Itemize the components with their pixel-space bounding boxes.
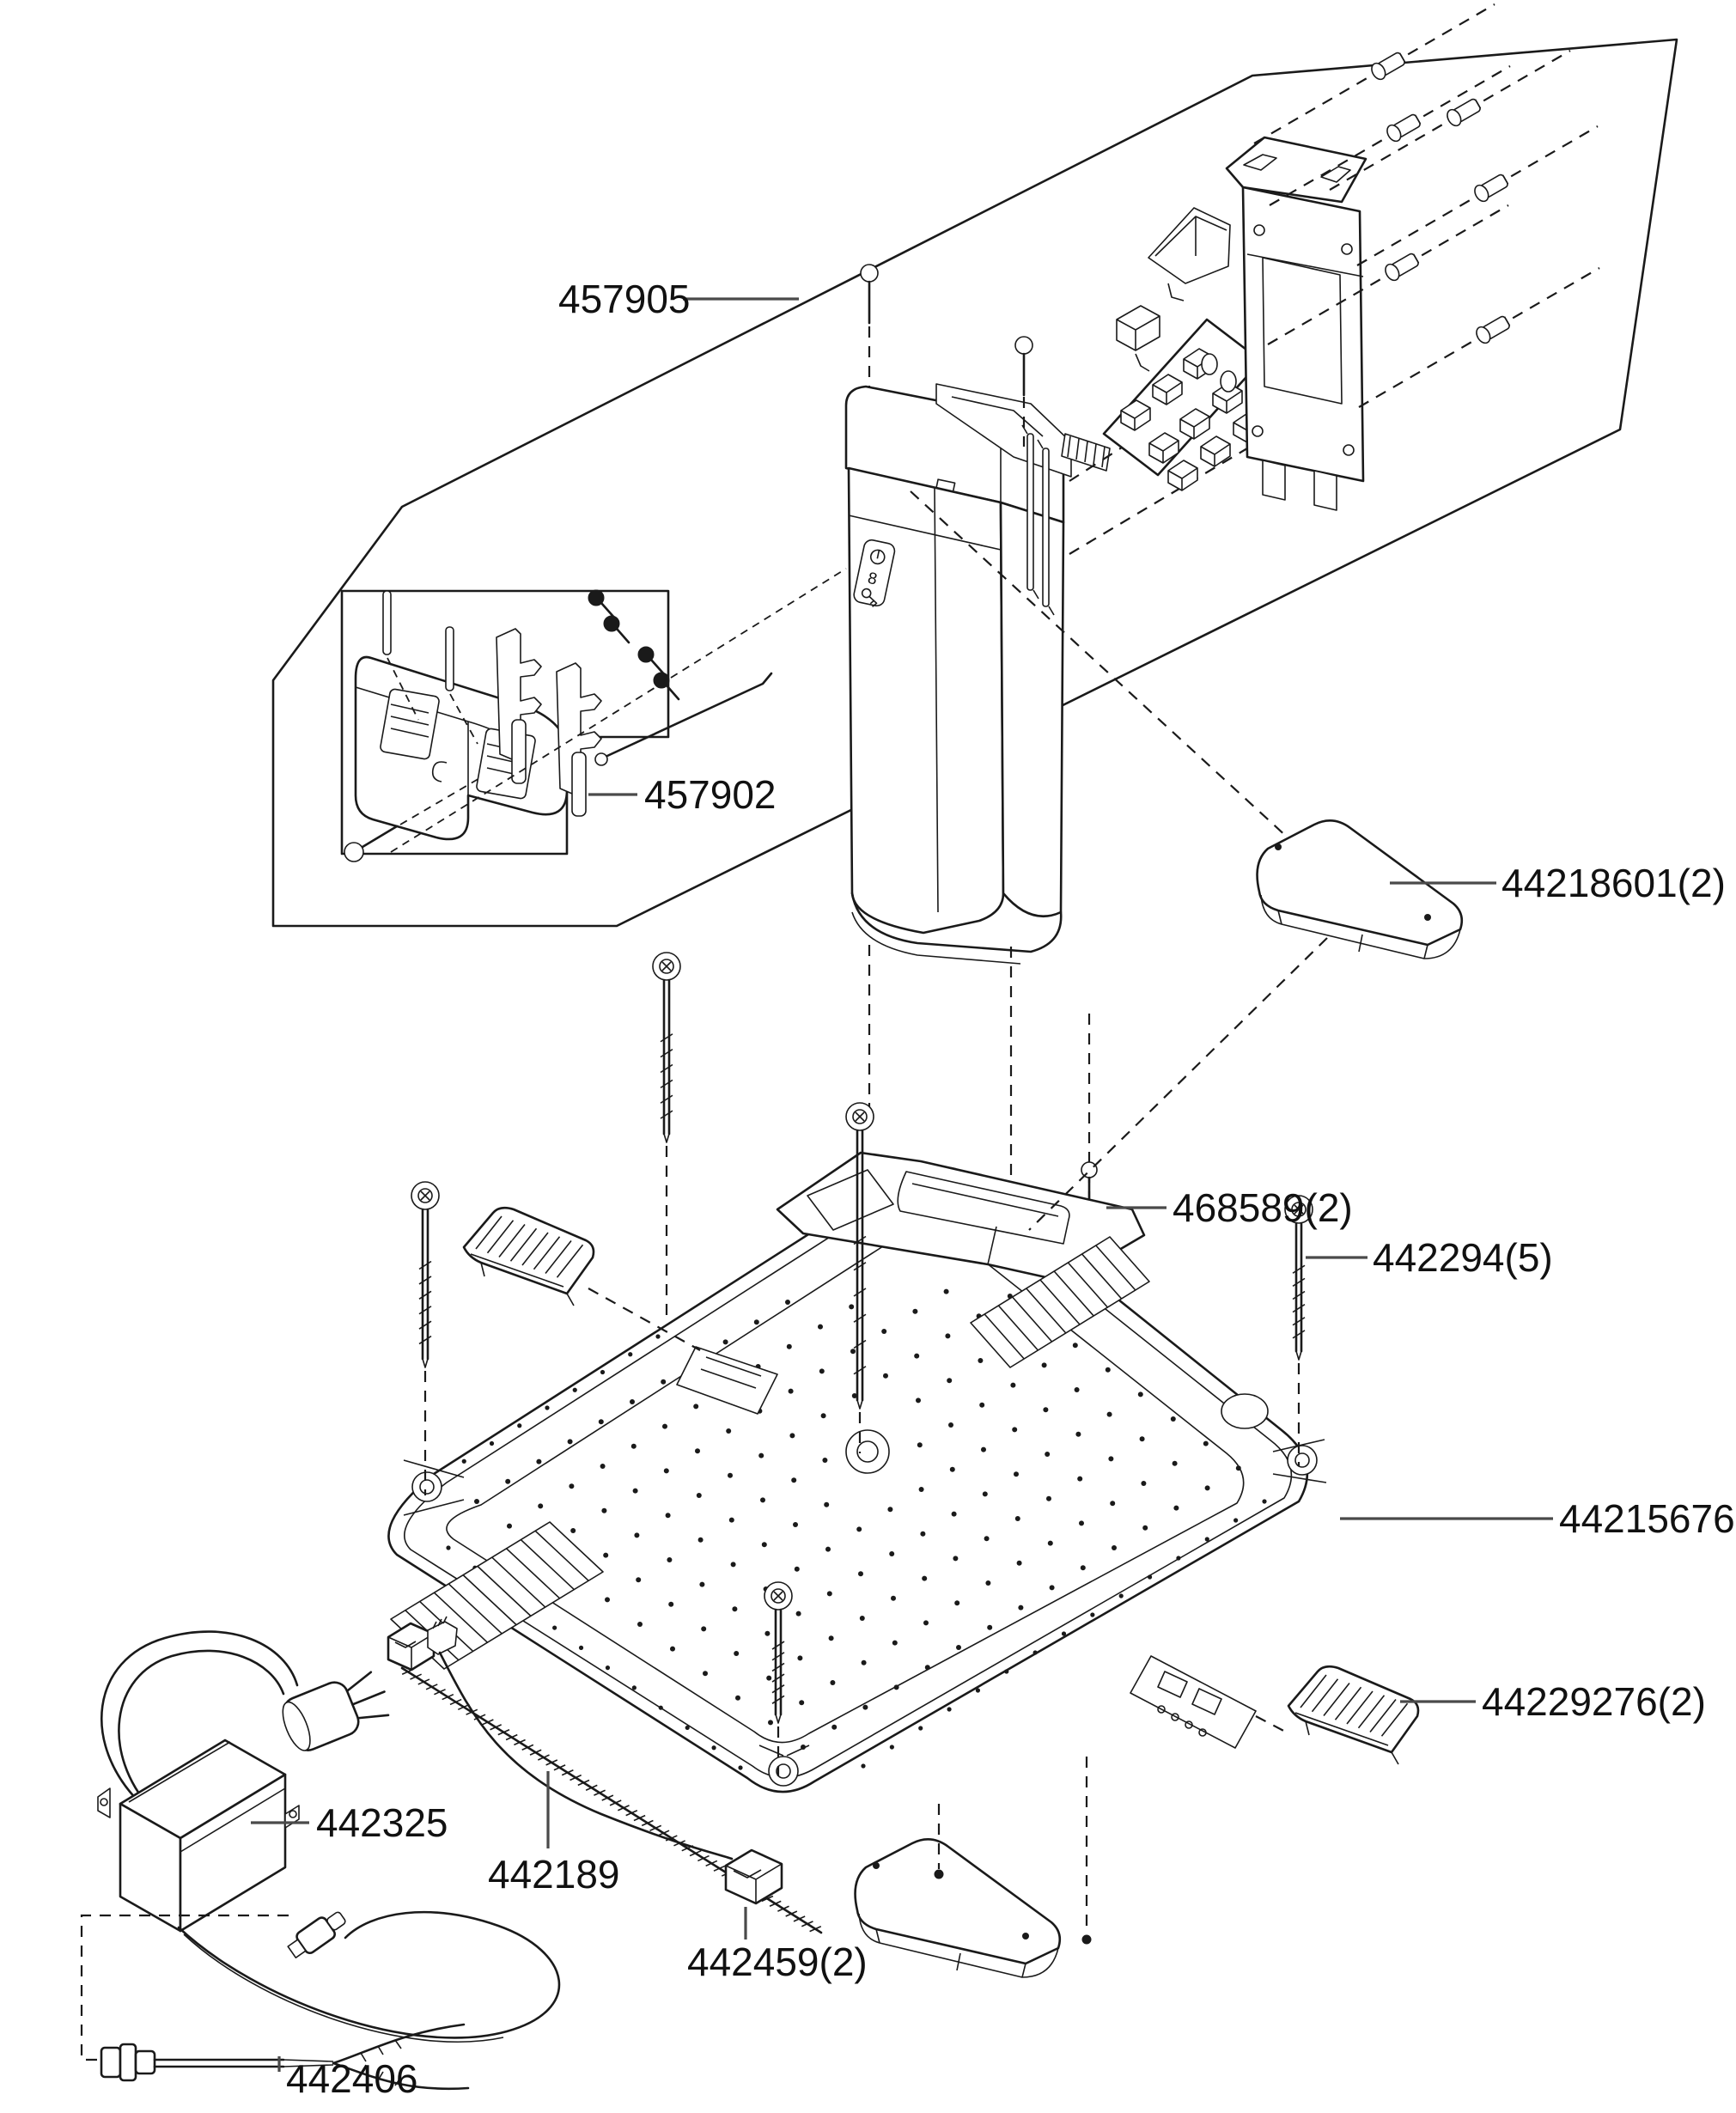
perforation-dot (762, 1542, 767, 1547)
perforation-dot (723, 1339, 728, 1344)
rim-dot (1262, 1499, 1266, 1503)
perforation-dot (1140, 1436, 1145, 1441)
perforation-dot (795, 1567, 800, 1572)
perforation-dot (987, 1625, 992, 1630)
perforation-dot (600, 1464, 606, 1469)
rim-dot (517, 1423, 521, 1428)
perforation-dot (858, 1571, 863, 1576)
rim-dot (446, 1545, 450, 1550)
screw-thread (1293, 1278, 1305, 1286)
perforation-dot (860, 1616, 865, 1621)
perforation-dot (568, 1439, 573, 1444)
kit-screws-black (588, 590, 679, 699)
rim-dot (1119, 1593, 1124, 1598)
rim-dot (1148, 1574, 1152, 1579)
rim-dot (1205, 1537, 1209, 1541)
perforation-dot (703, 1671, 708, 1676)
perforation-dot (754, 1319, 759, 1324)
screw-tip (1296, 1351, 1301, 1360)
perforation-dot (789, 1433, 795, 1438)
screw-thread (854, 1314, 866, 1322)
screw-thread (419, 1337, 431, 1344)
perforation-dot (862, 1660, 867, 1665)
corner-screw-bosses (404, 1440, 1326, 1786)
perforation-dot (693, 1404, 698, 1409)
perforation-dot (1050, 1585, 1055, 1590)
led-window-cover (1148, 208, 1230, 301)
screw-thread (1293, 1331, 1305, 1338)
perforation-dot (636, 1577, 641, 1582)
part-label-44229276: 44229276(2) (1482, 1679, 1706, 1724)
perforation-dot (789, 1389, 794, 1394)
perforation-dot (830, 1680, 835, 1685)
rim-dot (573, 1388, 577, 1392)
part-44218601-bumper-1 (1258, 820, 1462, 959)
perforation-dot (698, 1538, 704, 1543)
perforation-dot (1112, 1545, 1117, 1550)
rim-dot (738, 1765, 742, 1769)
rim-dot (711, 1745, 716, 1750)
perforation-dot (768, 1720, 773, 1725)
component-box (1168, 460, 1197, 490)
perforation-dot (605, 1597, 610, 1602)
plate-oval-hole (1221, 1394, 1268, 1428)
pcb-capacitor (1221, 371, 1236, 392)
perforation-dot (570, 1528, 576, 1533)
screw-tip (664, 1134, 669, 1142)
screw-442294 (653, 953, 680, 1322)
perforation-dot (824, 1502, 829, 1507)
perforation-dot (983, 1491, 988, 1496)
perforation-dot (1110, 1501, 1115, 1506)
perforation-dot (956, 1645, 961, 1650)
perforation-dot (954, 1600, 959, 1605)
perforation-dot (758, 1453, 764, 1458)
perforation-dot (978, 1358, 983, 1363)
perforation-dot (1048, 1541, 1053, 1546)
rim-dot (1176, 1556, 1180, 1560)
part-label-468589: 468589(2) (1173, 1185, 1353, 1230)
screw-thread (1293, 1265, 1305, 1273)
screw-tip (776, 1714, 781, 1723)
perforation-dot (1173, 1506, 1179, 1511)
perforation-dot (945, 1333, 950, 1338)
perforation-dot (630, 1399, 635, 1404)
perforation-dot (1203, 1441, 1209, 1446)
rim-dot (918, 1726, 923, 1730)
perforation-dot (923, 1620, 929, 1625)
screw-tip (423, 1359, 428, 1367)
exploded-parts-diagram: 8 (0, 0, 1736, 2113)
perforation-dot (631, 1444, 637, 1449)
perforation-dot (831, 1725, 837, 1730)
perforation-dot (1142, 1525, 1148, 1531)
pcb-component (1168, 460, 1197, 490)
screw-thread (772, 1663, 784, 1671)
perforation-dot (729, 1518, 734, 1523)
rim-dot (632, 1685, 637, 1690)
part-44218601-bumper-2 (856, 1839, 1060, 1977)
perforation-dot (668, 1602, 673, 1607)
perforation-dot (661, 1379, 666, 1385)
screw-thread (1293, 1318, 1305, 1325)
part-442459-connector (726, 1850, 782, 1903)
perforation-dot (914, 1354, 919, 1359)
perforation-dot (819, 1368, 825, 1373)
screw-thread (772, 1696, 784, 1703)
perforation-dot (695, 1448, 700, 1453)
screw-thread (419, 1262, 431, 1270)
perforation-dot (1141, 1481, 1146, 1486)
screw-thread (419, 1291, 431, 1299)
screw-thread (772, 1641, 784, 1649)
screw-thread (661, 1080, 673, 1087)
machine-screw (1472, 172, 1510, 204)
rim-dot (659, 1706, 663, 1710)
perforation-dot (944, 1289, 949, 1294)
screw-442294 (411, 1182, 439, 1495)
machine-screw (1474, 314, 1512, 345)
perforation-dot (829, 1635, 834, 1641)
perforation-dot (881, 1329, 886, 1334)
screw-thread (661, 1111, 673, 1118)
perforation-dot (1042, 1362, 1047, 1367)
perforation-dot (701, 1626, 706, 1631)
part-457902-contact-kit (344, 569, 846, 862)
part-label-457905: 457905 (558, 277, 691, 321)
perforation-dot (734, 1651, 739, 1656)
flap2-axis (1256, 1716, 1288, 1733)
plug-to-cable-link (82, 1915, 289, 2060)
perforation-dot (633, 1489, 638, 1494)
screw-thread (419, 1321, 431, 1329)
tower-front (849, 468, 1003, 933)
perforation-dot (891, 1596, 896, 1601)
diagram-canvas: 8 (0, 0, 1736, 2113)
perforation-dot (979, 1403, 984, 1408)
perforation-dot (887, 1507, 892, 1512)
perforation-dot (793, 1522, 798, 1527)
screw-thread (661, 1034, 673, 1042)
plate-screws-442294 (411, 953, 1313, 1776)
perforation-dot (731, 1562, 736, 1567)
perforation-dot (699, 1582, 704, 1587)
perforation-dot (925, 1665, 930, 1670)
perforation-dot (1079, 1520, 1084, 1525)
perforation-dot (732, 1606, 737, 1611)
perforation-dot (1081, 1565, 1086, 1570)
perforation-dot (948, 1422, 953, 1428)
perforation-dot (850, 1349, 856, 1354)
perforation-dot (1014, 1471, 1019, 1477)
perforation-dot (889, 1551, 894, 1556)
kit-signal-wire (595, 673, 771, 765)
rim-dot (628, 1352, 632, 1356)
perforation-dot (1075, 1387, 1080, 1392)
rim-dot (1233, 1518, 1238, 1522)
flap-outline (1288, 1666, 1418, 1752)
screw-thread (1293, 1305, 1305, 1312)
screw-thread (772, 1674, 784, 1682)
low-voltage-cord (179, 1912, 559, 2037)
perforation-dot (1015, 1516, 1020, 1521)
part-label-442189: 442189 (488, 1852, 620, 1897)
perforation-dot (1106, 1367, 1111, 1373)
perforation-dot (894, 1684, 899, 1690)
machine-screw (1383, 251, 1421, 283)
part-label-442325: 442325 (316, 1800, 448, 1845)
rim-dot (1090, 1612, 1094, 1617)
perforation-dot (822, 1458, 827, 1463)
perforation-dot (825, 1547, 831, 1552)
screw-thread (772, 1653, 784, 1660)
part-44229276-flap-1 (464, 1208, 594, 1306)
perforation-dot (601, 1508, 606, 1513)
latch-socket-left (677, 1347, 777, 1414)
part-label-442459: 442459(2) (687, 1939, 868, 1984)
perforation-dot (919, 1487, 924, 1492)
perforation-dot (799, 1700, 804, 1705)
perforation-dot (785, 1300, 790, 1305)
perforation-dot (667, 1557, 672, 1562)
rim-dot (976, 1688, 980, 1692)
power-supply (82, 1632, 559, 2060)
perforation-dot (950, 1467, 955, 1472)
bumper-screw-dot (873, 1862, 880, 1869)
screw-thread (661, 1050, 673, 1057)
psu-brick (98, 1740, 299, 1931)
perforation-dot (760, 1497, 765, 1502)
rim-dot (552, 1625, 557, 1629)
frame-opening (1263, 258, 1342, 404)
latch-socket-right (1130, 1656, 1256, 1748)
perforation-dot (726, 1428, 731, 1434)
rim-dot (490, 1441, 494, 1446)
part-label-442406: 442406 (286, 2056, 418, 2101)
relay-box (1117, 306, 1160, 371)
perforation-dot (536, 1459, 541, 1464)
screw-thread (661, 1065, 673, 1073)
perforation-dot (883, 1373, 888, 1379)
perforation-dot (1010, 1383, 1015, 1388)
pcb-capacitor (1202, 354, 1217, 374)
perforation-dot (637, 1622, 643, 1627)
part-label-457902: 457902 (644, 772, 777, 817)
bumper-screw-dot (1022, 1933, 1029, 1939)
rim-dot (545, 1405, 549, 1410)
screw-thread (661, 1095, 673, 1103)
screw-tip (857, 1400, 862, 1409)
small-screw (861, 265, 878, 323)
perforation-dot (1043, 1407, 1048, 1412)
part-44229276-flap-2 (1288, 1666, 1418, 1764)
perforation-dot (1108, 1456, 1113, 1461)
perforation-dot (947, 1378, 952, 1383)
rim-dot (1062, 1631, 1066, 1635)
low-voltage-plug (285, 1907, 350, 1962)
rim-dot (947, 1707, 951, 1711)
perforation-dot (1077, 1477, 1082, 1482)
perforation-dot (917, 1442, 923, 1447)
perforation-dot (952, 1512, 957, 1517)
perforation-dot (818, 1324, 823, 1330)
perforation-dot (821, 1413, 826, 1418)
perforation-dot (1018, 1605, 1023, 1611)
part-label-442294: 442294(5) (1373, 1235, 1553, 1280)
perforation-dot (666, 1513, 671, 1518)
perforation-dot (827, 1591, 832, 1596)
bumper-screw-dot (1275, 843, 1282, 850)
rim-dot (861, 1763, 865, 1768)
perforation-dot (670, 1647, 675, 1652)
perforation-dot (849, 1304, 854, 1309)
perforation-dot (892, 1641, 898, 1646)
screw-thread (419, 1306, 431, 1314)
perforation-dot (634, 1532, 639, 1538)
perforation-dot (766, 1676, 771, 1681)
perforation-dot (856, 1526, 862, 1531)
small-screw (1015, 337, 1032, 395)
perforation-dot (664, 1468, 669, 1473)
perforation-dot (569, 1483, 574, 1489)
machine-screw (1369, 50, 1407, 82)
wall-mount-frame (1227, 4, 1599, 510)
screw-thread (419, 1276, 431, 1284)
perforation-dot (1046, 1496, 1051, 1501)
rim-dot (1004, 1669, 1008, 1673)
flap-outline (464, 1208, 594, 1294)
perforation-dot (791, 1477, 796, 1483)
screw-head (1015, 337, 1032, 354)
perforation-dot (862, 1705, 868, 1710)
perforation-dot (797, 1655, 802, 1660)
screw-thread (854, 1341, 866, 1349)
connector-box-a (388, 1623, 434, 1670)
perforation-dot (953, 1556, 958, 1561)
screw-thread (854, 1367, 866, 1374)
rim-dot (579, 1646, 583, 1650)
perforation-dot (1205, 1485, 1210, 1490)
perforation-dot (728, 1473, 733, 1478)
perforation-dot (787, 1344, 792, 1349)
part-label-44215676: 44215676 (1559, 1496, 1735, 1541)
perforation-dot (916, 1398, 921, 1403)
perforation-dot (1073, 1343, 1078, 1348)
perforation-dot (507, 1524, 512, 1529)
perforation-dot (796, 1611, 801, 1617)
perforation-dot (474, 1499, 479, 1504)
perforation-dot (599, 1419, 604, 1424)
rim-dot (462, 1459, 466, 1464)
contact-window-left (380, 689, 440, 760)
screw-thread (854, 1288, 866, 1296)
rim-dot (655, 1334, 660, 1338)
perforation-dot (662, 1424, 667, 1429)
perforation-dot (920, 1531, 925, 1537)
perforation-dot (922, 1576, 927, 1581)
perforation-dot (912, 1309, 917, 1314)
perforation-dot (1012, 1427, 1017, 1432)
connector-pigtail (440, 1653, 732, 1859)
perforation-dot (1173, 1461, 1178, 1466)
perforation-dot (985, 1580, 990, 1586)
tower-screws (861, 265, 1032, 395)
part-label-44218601: 44218601(2) (1501, 861, 1726, 905)
perforation-dot (505, 1479, 510, 1484)
perforation-dot (764, 1631, 770, 1636)
screw-thread (1293, 1292, 1305, 1300)
perforation-dot (1107, 1412, 1112, 1417)
rim-dot (600, 1370, 605, 1374)
flap1-axis (588, 1288, 700, 1350)
perforation-dot (1171, 1416, 1176, 1422)
rim-dot (890, 1745, 894, 1749)
perforation-dot (1138, 1391, 1143, 1397)
perforation-dot (1236, 1465, 1241, 1471)
screw-442294 (1285, 1196, 1313, 1466)
rim-dot (1033, 1650, 1038, 1654)
perforation-dot (984, 1536, 990, 1541)
perforation-dot (1017, 1561, 1022, 1566)
perforation-dot (697, 1493, 702, 1498)
center-hole (846, 1430, 889, 1473)
rim-dot (606, 1665, 610, 1670)
screw-head (861, 265, 878, 282)
bumper-screw-dot (1424, 914, 1431, 921)
screw-thread (772, 1685, 784, 1693)
perforation-dot (1075, 1432, 1081, 1437)
perforation-dot (538, 1503, 543, 1508)
perforation-dot (981, 1447, 986, 1452)
perforation-dot (1045, 1452, 1050, 1457)
rim-dot (685, 1726, 690, 1730)
perforation-dot (735, 1696, 740, 1701)
perforation-dot (603, 1553, 608, 1558)
